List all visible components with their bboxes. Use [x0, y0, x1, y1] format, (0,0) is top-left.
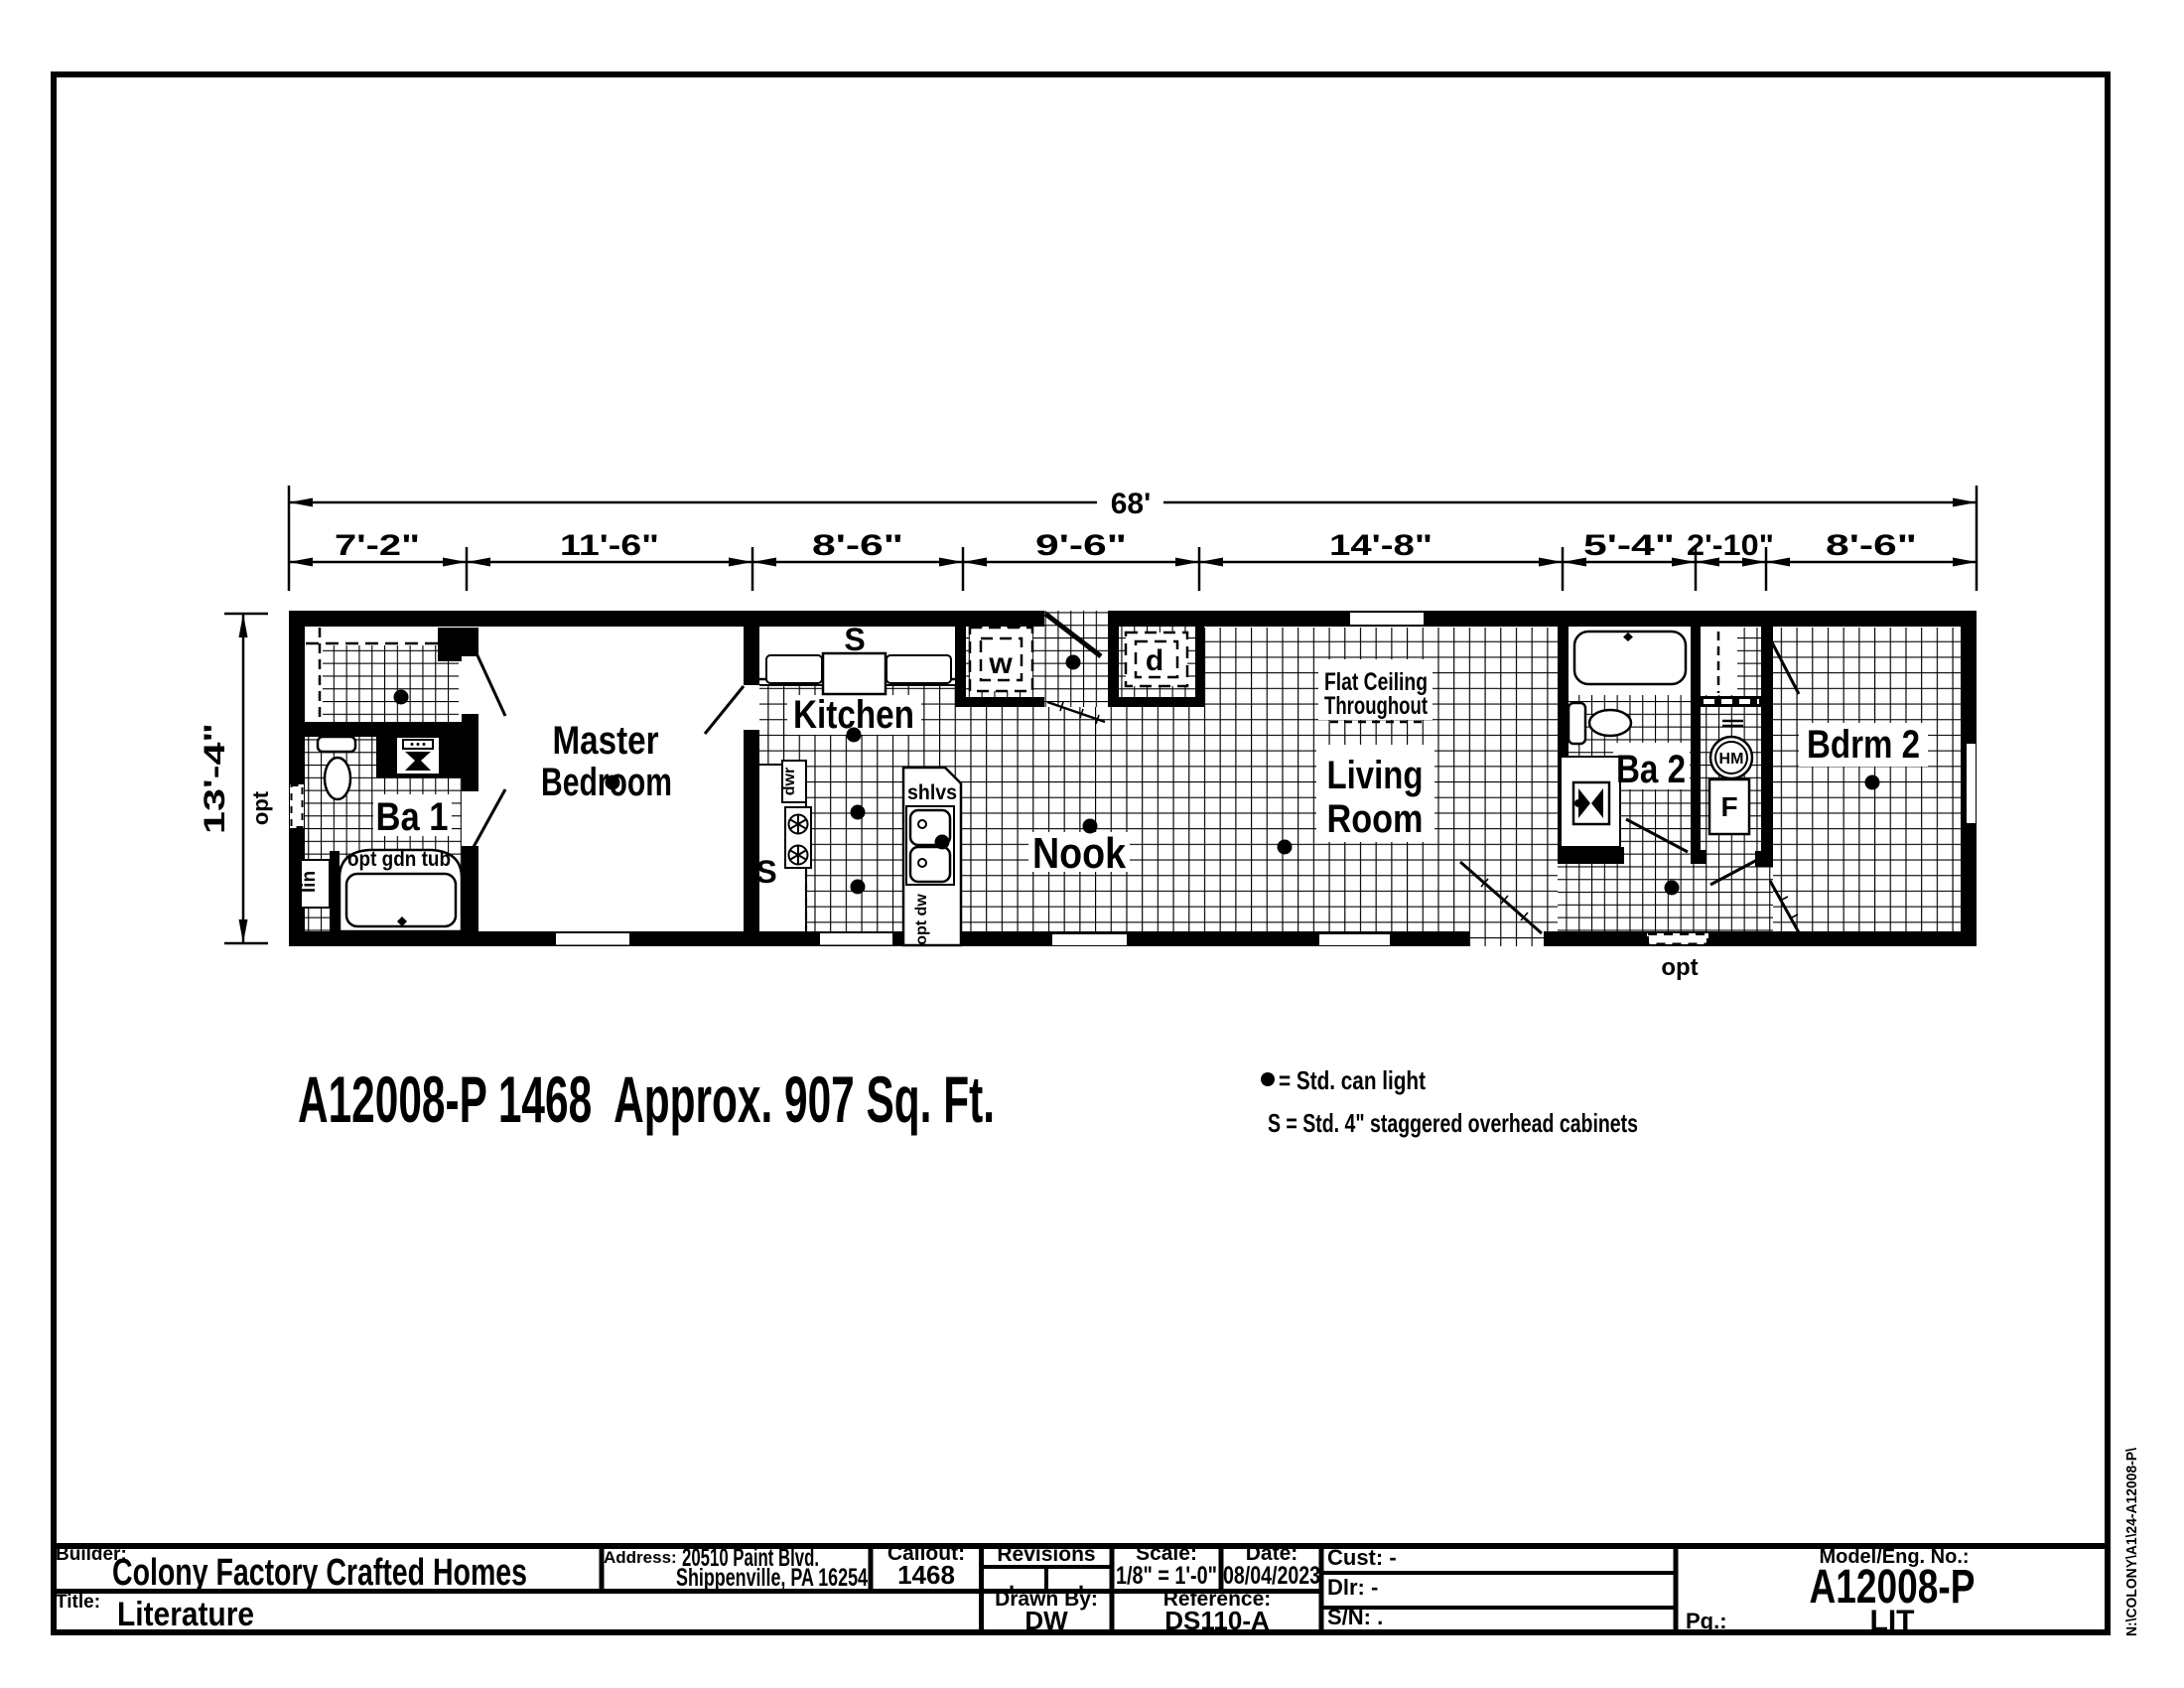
svg-text:Kitchen: Kitchen: [793, 693, 914, 737]
svg-text:8'-6": 8'-6": [1826, 529, 1917, 562]
svg-text:= Std. can light: = Std. can light: [1279, 1065, 1426, 1095]
svg-text:S: S: [844, 622, 865, 657]
svg-text:A12008-P 1468 Approx. 907 Sq.: A12008-P 1468 Approx. 907 Sq. Ft.: [298, 1062, 995, 1136]
svg-text:14'-8": 14'-8": [1329, 529, 1433, 562]
svg-text:Colony Factory Crafted Homes: Colony Factory Crafted Homes: [112, 1552, 527, 1594]
svg-text:Title:: Title:: [56, 1592, 100, 1613]
svg-text:8'-6": 8'-6": [812, 529, 903, 562]
svg-text:S = Std. 4" staggered overhead: S = Std. 4" staggered overhead cabinets: [1268, 1108, 1638, 1138]
svg-text:Nook: Nook: [1032, 829, 1126, 878]
svg-text:Ba 1: Ba 1: [376, 795, 449, 839]
svg-text:d: d: [1146, 644, 1163, 677]
svg-text:13'-4": 13'-4": [199, 723, 231, 834]
svg-text:68': 68': [1111, 488, 1152, 520]
svg-text:Address:: Address:: [604, 1548, 677, 1567]
svg-text:opt dw: opt dw: [913, 894, 930, 945]
svg-text:w: w: [988, 647, 1013, 680]
svg-text:Revisions: Revisions: [997, 1543, 1095, 1566]
svg-text:F: F: [1720, 791, 1737, 822]
svg-text:DW: DW: [1024, 1606, 1068, 1635]
svg-text:11'-6": 11'-6": [560, 529, 659, 562]
svg-text:N:\COLONY\A1\24-A12008-P\: N:\COLONY\A1\24-A12008-P\: [2123, 1447, 2140, 1636]
svg-text:lin: lin: [299, 871, 320, 893]
svg-text:S/N: .: S/N: .: [1327, 1605, 1383, 1629]
svg-text:1/8" = 1'-0": 1/8" = 1'-0": [1116, 1562, 1217, 1590]
svg-text:7'-2": 7'-2": [335, 529, 420, 562]
svg-text:Bedroom: Bedroom: [541, 761, 672, 804]
svg-text:Cust: -: Cust: -: [1327, 1545, 1397, 1570]
svg-text:Pg.:: Pg.:: [1686, 1609, 1727, 1633]
svg-text:Bdrm 2: Bdrm 2: [1807, 723, 1920, 767]
svg-text:LIT: LIT: [1870, 1605, 1915, 1637]
svg-text:DS110-A: DS110-A: [1164, 1606, 1270, 1635]
svg-text:shlvs: shlvs: [907, 781, 957, 804]
svg-text:Throughout: Throughout: [1324, 692, 1428, 720]
svg-text:Dlr: -: Dlr: -: [1327, 1575, 1378, 1600]
svg-text:Living: Living: [1327, 754, 1424, 797]
svg-text:Ba 2: Ba 2: [1616, 748, 1686, 791]
svg-text:9'-6": 9'-6": [1035, 529, 1127, 562]
svg-text:08/04/2023: 08/04/2023: [1223, 1562, 1320, 1590]
svg-text:HM: HM: [1719, 751, 1744, 768]
svg-text:Literature: Literature: [117, 1596, 254, 1633]
svg-text:opt gdn tub: opt gdn tub: [347, 848, 451, 871]
svg-text:1468: 1468: [897, 1560, 955, 1590]
svg-text:S: S: [755, 854, 776, 890]
svg-text:opt: opt: [1661, 954, 1698, 981]
svg-text:dwr: dwr: [781, 768, 798, 795]
svg-text:opt: opt: [248, 790, 273, 825]
svg-text:Room: Room: [1327, 797, 1424, 841]
svg-text:Master: Master: [553, 719, 659, 763]
svg-text:5'-4": 5'-4": [1583, 529, 1675, 562]
svg-text:2'-10": 2'-10": [1687, 529, 1774, 562]
svg-text:Shippenville, PA 16254: Shippenville, PA 16254: [676, 1564, 868, 1592]
